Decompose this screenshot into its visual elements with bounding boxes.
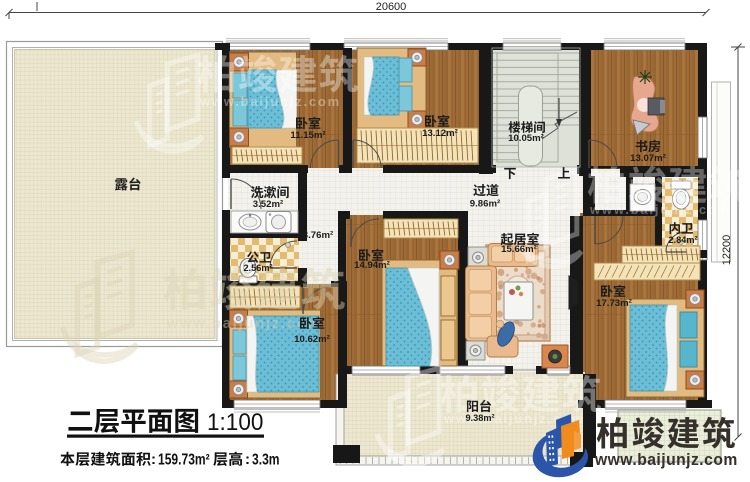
- svg-text:www.baijunjz.com: www.baijunjz.com: [589, 202, 731, 217]
- svg-text:15.66m²: 15.66m²: [501, 244, 537, 255]
- svg-text:10.05m²: 10.05m²: [508, 133, 544, 144]
- svg-text:12200: 12200: [721, 235, 733, 266]
- svg-text::: :: [245, 451, 250, 468]
- svg-text:3.76m²: 3.76m²: [303, 230, 333, 241]
- svg-text:2.56m²: 2.56m²: [243, 263, 272, 273]
- svg-text:13.12m²: 13.12m²: [422, 128, 458, 139]
- svg-text:10.62m²: 10.62m²: [294, 334, 330, 345]
- svg-text::: :: [151, 451, 156, 468]
- svg-text:www.baijunjz.com: www.baijunjz.com: [594, 451, 738, 469]
- svg-text:159.73m²: 159.73m²: [158, 450, 210, 468]
- svg-text:20600: 20600: [376, 1, 407, 13]
- svg-text:www.baijunjz.com: www.baijunjz.com: [199, 94, 341, 109]
- svg-text:17.73m²: 17.73m²: [596, 298, 632, 309]
- svg-text:14.94m²: 14.94m²: [354, 260, 390, 271]
- svg-text:11.15m²: 11.15m²: [290, 130, 325, 141]
- svg-text:www.baijunjz.com: www.baijunjz.com: [166, 316, 323, 332]
- svg-text:3.52m²: 3.52m²: [253, 199, 283, 210]
- svg-text:1:100: 1:100: [207, 408, 263, 435]
- svg-text:13.07m²: 13.07m²: [630, 153, 666, 164]
- svg-text:3.3m: 3.3m: [252, 450, 280, 468]
- svg-text:2.84m²: 2.84m²: [668, 235, 697, 245]
- svg-text:9.38m²: 9.38m²: [465, 413, 494, 423]
- svg-text:9.86m²: 9.86m²: [470, 199, 500, 210]
